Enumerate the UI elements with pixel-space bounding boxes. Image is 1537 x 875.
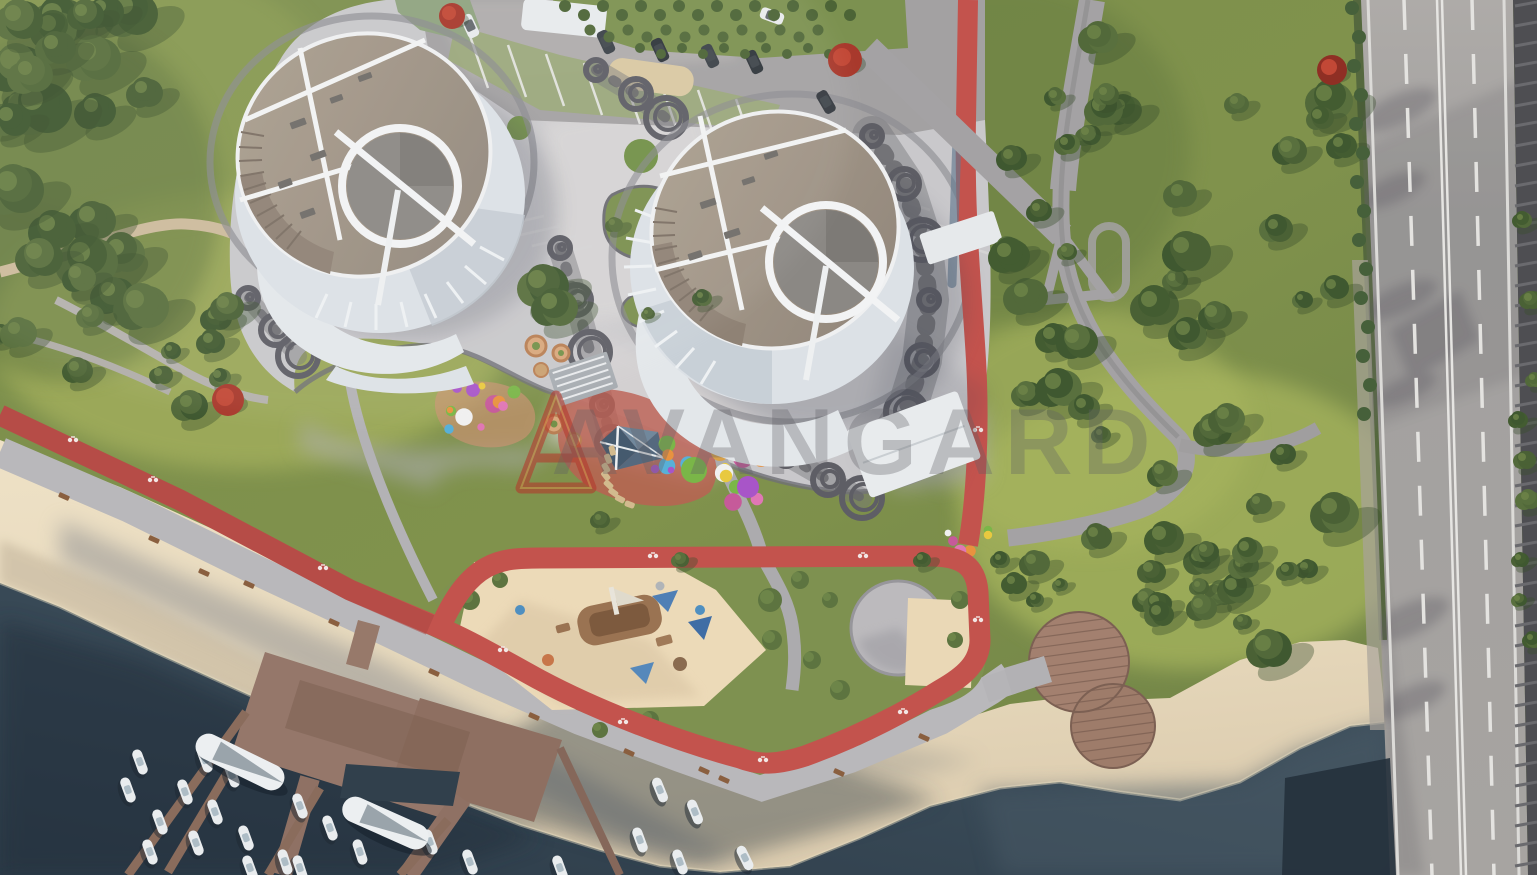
svg-text:AVANGARD: AVANGARD: [551, 389, 1160, 494]
